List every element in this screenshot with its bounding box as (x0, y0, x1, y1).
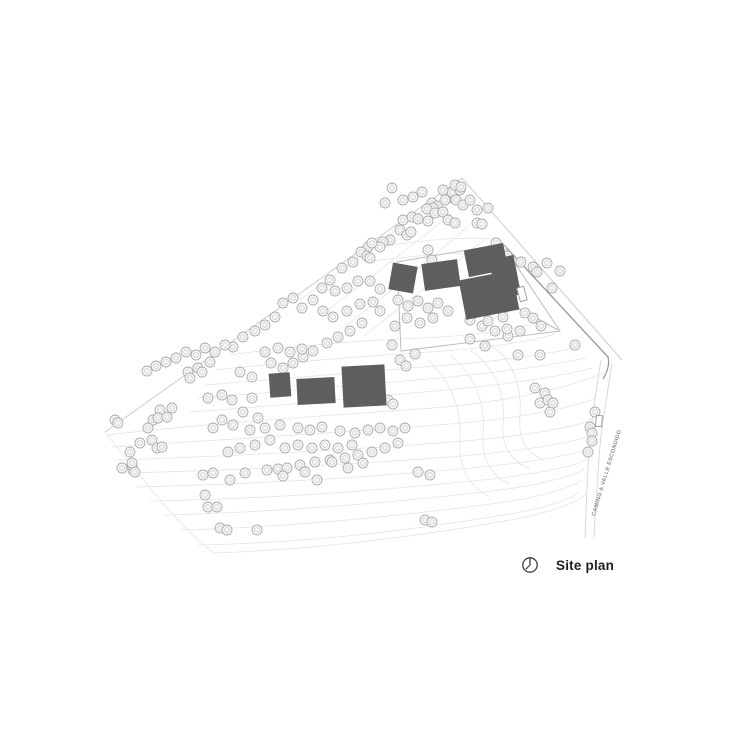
tree-symbol (408, 192, 418, 202)
tree-symbol (225, 475, 235, 485)
tree-symbol (297, 344, 307, 354)
tree-symbol (388, 426, 398, 436)
tree-symbol (297, 303, 307, 313)
small-structure-outline (517, 286, 527, 301)
tree-symbol (472, 205, 482, 215)
tree-symbol (587, 436, 597, 446)
tree-symbol (270, 312, 280, 322)
tree-symbol (135, 438, 145, 448)
tree-symbol (328, 312, 338, 322)
tree-symbol (228, 420, 238, 430)
tree-symbol (181, 347, 191, 357)
tree-symbol (222, 525, 232, 535)
page-title: Site plan (556, 558, 614, 573)
tree-symbol (217, 390, 227, 400)
tree-symbol (200, 490, 210, 500)
building-footprint (296, 377, 335, 405)
tree-symbol (353, 276, 363, 286)
tree-symbol (413, 467, 423, 477)
contour-line (470, 350, 530, 469)
tree-symbol (545, 407, 555, 417)
tree-symbol (223, 447, 233, 457)
tree-symbol (450, 218, 460, 228)
tree-symbol (305, 425, 315, 435)
tree-symbol (203, 502, 213, 512)
tree-symbol (198, 470, 208, 480)
tree-symbol (438, 185, 448, 195)
tree-symbol (343, 463, 353, 473)
tree-symbol (153, 413, 163, 423)
tree-symbol (210, 347, 220, 357)
tree-symbol (203, 393, 213, 403)
tree-symbol (151, 361, 161, 371)
tree-symbol (217, 415, 227, 425)
tree-symbol (413, 214, 423, 224)
tree-symbol (142, 366, 152, 376)
tree-symbol (212, 502, 222, 512)
tree-symbol (235, 443, 245, 453)
tree-symbol (415, 318, 425, 328)
tree-symbol (293, 423, 303, 433)
tree-symbol (191, 350, 201, 360)
tree-symbol (143, 423, 153, 433)
tree-symbol (363, 425, 373, 435)
tree-symbol (220, 340, 230, 350)
tree-symbol (227, 395, 237, 405)
tree-symbol (161, 357, 171, 367)
tree-symbol (398, 215, 408, 225)
tree-symbol (238, 407, 248, 417)
tree-symbol (253, 413, 263, 423)
tree-symbol (483, 316, 493, 326)
tree-symbol (320, 440, 330, 450)
tree-symbol (375, 306, 385, 316)
tree-symbol (365, 276, 375, 286)
tree-symbol (278, 471, 288, 481)
tree-symbol (333, 443, 343, 453)
tree-symbol (423, 216, 433, 226)
tree-symbol (400, 423, 410, 433)
tree-symbol (357, 318, 367, 328)
tree-symbol (423, 245, 433, 255)
tree-symbol (288, 293, 298, 303)
tree-symbol (401, 361, 411, 371)
tree-symbol (342, 283, 352, 293)
building-footprint (269, 372, 292, 397)
contour-line (180, 480, 581, 530)
tree-symbol (308, 295, 318, 305)
tree-symbol (433, 298, 443, 308)
tree-symbol (548, 398, 558, 408)
tree-symbol (368, 297, 378, 307)
small-structure-outline (596, 415, 603, 426)
tree-symbol (515, 326, 525, 336)
tree-symbol (208, 423, 218, 433)
tree-symbol (280, 443, 290, 453)
tree-symbol (532, 267, 542, 277)
tree-symbol (162, 412, 172, 422)
tree-symbol (347, 440, 357, 450)
tree-symbol (308, 346, 318, 356)
tree-symbol (345, 326, 355, 336)
tree-symbol (197, 367, 207, 377)
tree-symbol (262, 465, 272, 475)
site-plan-page: Site plan CAMINO A VALLE ESCONDIDO (0, 0, 750, 752)
tree-symbol (502, 324, 512, 334)
tree-symbol (516, 257, 526, 267)
tree-symbol (208, 468, 218, 478)
tree-symbol (483, 203, 493, 213)
tree-symbol (440, 195, 450, 205)
tree-symbol (250, 440, 260, 450)
tree-symbol (317, 422, 327, 432)
tree-symbol (403, 301, 413, 311)
tree-symbol (260, 320, 270, 330)
tree-symbol (465, 195, 475, 205)
tree-symbol (252, 525, 262, 535)
tree-symbol (247, 372, 257, 382)
tree-symbol (417, 187, 427, 197)
tree-symbol (247, 393, 257, 403)
tree-symbol (200, 343, 210, 353)
tree-symbol (185, 373, 195, 383)
tree-symbol (317, 283, 327, 293)
tree-symbol (278, 363, 288, 373)
tree-symbol (530, 383, 540, 393)
tree-symbol (318, 306, 328, 316)
tree-symbol (480, 341, 490, 351)
tree-symbol (205, 357, 215, 367)
tree-symbol (333, 332, 343, 342)
tree-symbol (528, 313, 538, 323)
tree-symbol (340, 453, 350, 463)
tree-symbol (325, 275, 335, 285)
tree-symbol (393, 295, 403, 305)
tree-symbol (117, 463, 127, 473)
tree-symbol (235, 367, 245, 377)
tree-symbol (171, 353, 181, 363)
tree-symbol (288, 358, 298, 368)
tree-symbol (312, 475, 322, 485)
tree-symbol (388, 399, 398, 409)
tree-symbol (410, 349, 420, 359)
tree-symbol (337, 263, 347, 273)
tree-symbol (157, 442, 167, 452)
tree-symbol (477, 219, 487, 229)
tree-symbol (250, 326, 260, 336)
building-footprint (421, 259, 460, 291)
building-footprint (341, 364, 386, 407)
tree-symbol (127, 458, 137, 468)
tree-symbol (260, 347, 270, 357)
tree-symbol (358, 458, 368, 468)
tree-symbol (130, 467, 140, 477)
tree-symbol (355, 299, 365, 309)
tree-symbol (167, 403, 177, 413)
contour-line (428, 360, 488, 496)
tree-symbol (427, 517, 437, 527)
building-footprint (459, 270, 520, 320)
tree-symbol (300, 467, 310, 477)
tree-symbol (570, 340, 580, 350)
tree-symbol (387, 183, 397, 193)
tree-symbol (542, 258, 552, 268)
north-arrow-icon (520, 555, 540, 575)
tree-symbol (273, 343, 283, 353)
tree-symbol (113, 418, 123, 428)
tree-symbol (330, 286, 340, 296)
tree-symbol (547, 283, 557, 293)
tree-symbol (125, 447, 135, 457)
tree-symbol (275, 420, 285, 430)
tree-symbol (465, 334, 475, 344)
tree-symbol (260, 423, 270, 433)
tree-symbol (285, 347, 295, 357)
tree-symbol (413, 296, 423, 306)
tree-symbol (498, 312, 508, 322)
tree-symbol (390, 321, 400, 331)
tree-symbol (266, 358, 276, 368)
tree-symbol (278, 298, 288, 308)
contour-line (198, 492, 579, 545)
tree-symbol (443, 306, 453, 316)
tree-symbol (310, 457, 320, 467)
tree-symbol (536, 321, 546, 331)
tree-symbol (367, 238, 377, 248)
tree-symbol (513, 350, 523, 360)
tree-symbol (402, 313, 412, 323)
tree-symbol (380, 198, 390, 208)
tree-symbol (387, 340, 397, 350)
tree-symbol (393, 438, 403, 448)
tree-symbol (322, 338, 332, 348)
tree-symbol (380, 443, 390, 453)
tree-symbol (342, 306, 352, 316)
building-footprint (388, 263, 417, 294)
tree-symbol (367, 447, 377, 457)
tree-symbol (423, 303, 433, 313)
tree-symbol (456, 182, 466, 192)
tree-symbol (265, 435, 275, 445)
tree-symbol (490, 326, 500, 336)
legend: Site plan (520, 555, 614, 575)
tree-symbol (335, 426, 345, 436)
tree-symbol (555, 266, 565, 276)
tree-symbol (365, 253, 375, 263)
tree-symbol (425, 470, 435, 480)
tree-symbol (348, 257, 358, 267)
tree-symbol (293, 440, 303, 450)
tree-symbol (375, 423, 385, 433)
tree-symbol (535, 350, 545, 360)
tree-symbol (245, 425, 255, 435)
tree-symbol (398, 195, 408, 205)
contour-line (150, 459, 587, 501)
tree-symbol (238, 332, 248, 342)
tree-symbol (350, 428, 360, 438)
tree-symbol (307, 443, 317, 453)
tree-symbol (583, 447, 593, 457)
tree-symbol (406, 227, 416, 237)
tree-symbol (327, 457, 337, 467)
site-plan-drawing (0, 0, 750, 752)
tree-symbol (375, 284, 385, 294)
tree-symbol (240, 468, 250, 478)
tree-symbol (428, 313, 438, 323)
